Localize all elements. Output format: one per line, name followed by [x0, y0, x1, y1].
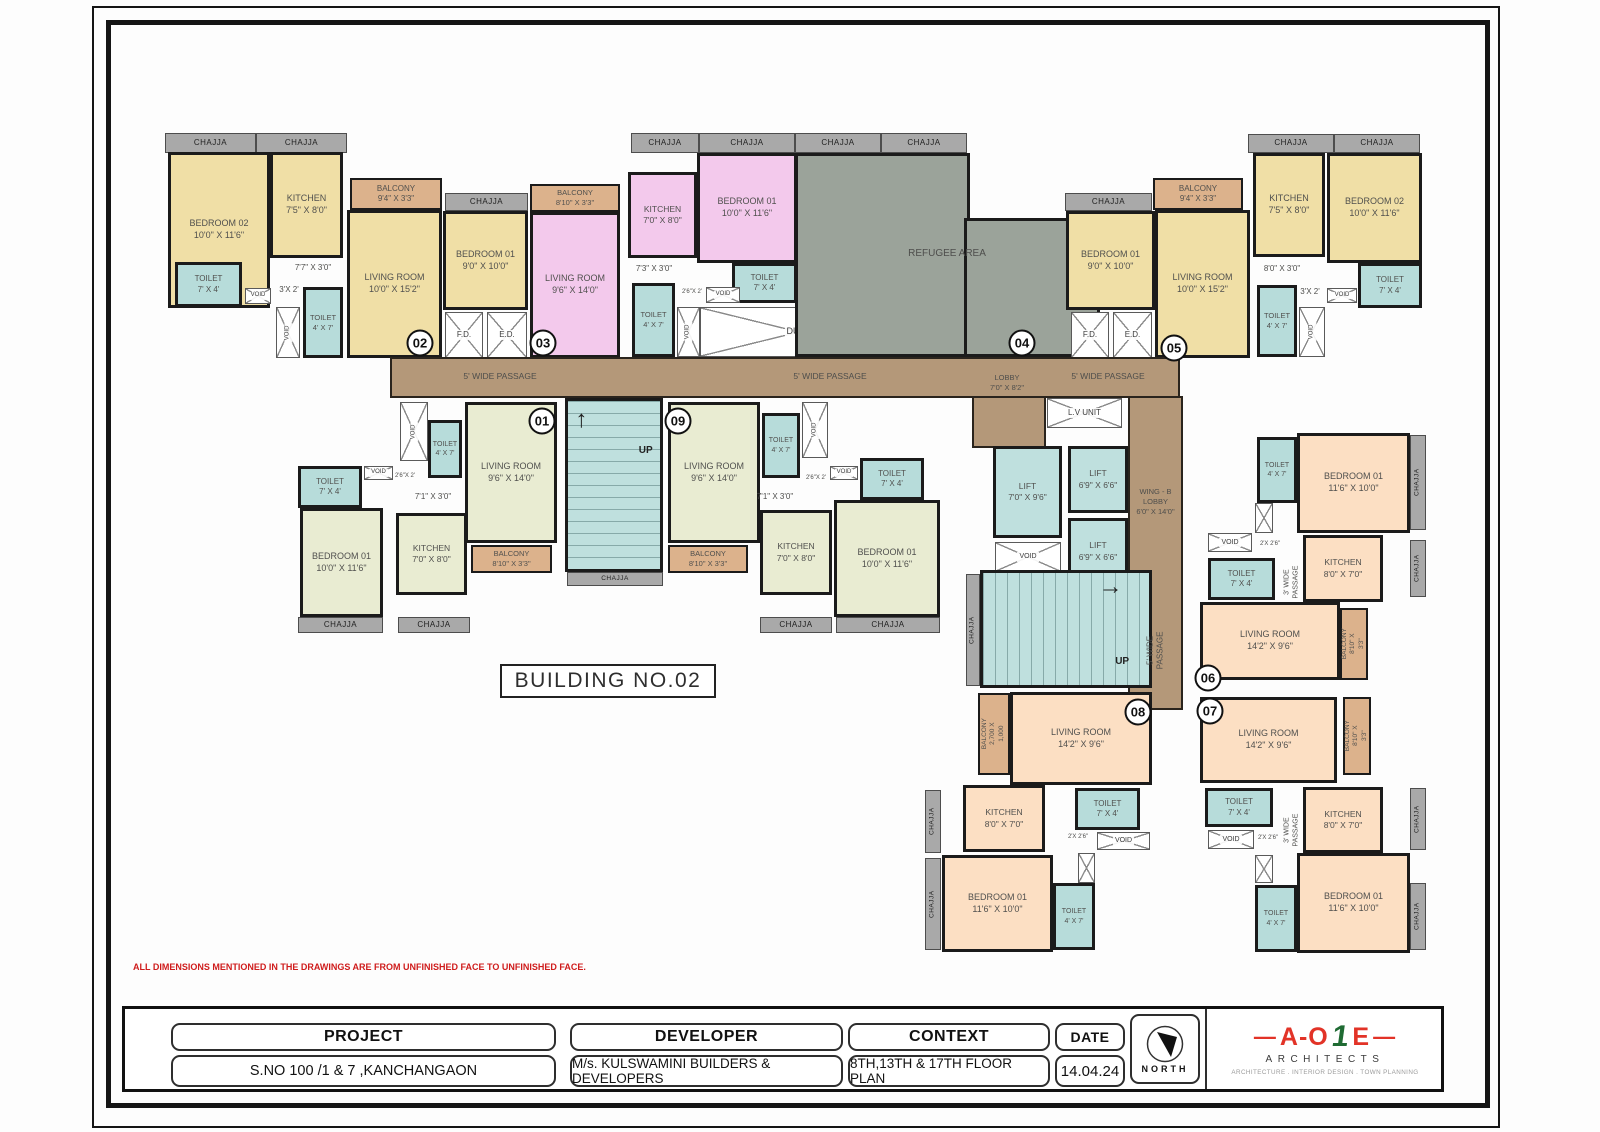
room-label: CHAJJA	[1414, 469, 1422, 497]
room-label: BALCONY 9'4" X 3'3"	[1179, 184, 1217, 205]
room-label: CHAJJA	[929, 890, 937, 918]
developer-value: M/s. KULSWAMINI BUILDERS & DEVELOPERS	[570, 1055, 843, 1087]
e-d--box: E.D.	[487, 312, 527, 358]
void-box	[1255, 855, 1273, 883]
room-label: TOILET 7' X 4'	[1376, 275, 1404, 296]
plan-label: 2'6"X 2'	[389, 471, 421, 482]
void-box: VOID	[276, 307, 300, 358]
room-label: 7'1" X 3'0"	[415, 492, 451, 502]
room-toilet: TOILET 7' X 4'	[175, 262, 242, 307]
room-label: TOILET 7' X 4'	[1228, 569, 1256, 590]
room-label: 2'6"X 2'	[806, 475, 826, 483]
room-label: TOILET 7' X 4'	[1225, 797, 1253, 818]
room-lift: LIFT 6'9" X 6'6"	[1068, 446, 1128, 513]
plan-label: 3' WIDE PASSAGE	[1283, 778, 1299, 883]
room-toilet: TOILET 4' X 7'	[1255, 885, 1297, 952]
room-label: BALCONY 8'10" X 3'3"	[556, 188, 594, 208]
room-label: BALCONY 8'10" X 3'3"	[1344, 720, 1369, 751]
room-toilet: TOILET 7' X 4'	[1205, 788, 1273, 827]
room-kitchen: KITCHEN 8'0" X 7'0"	[963, 785, 1045, 852]
room-label: KITCHEN 8'0" X 7'0"	[1324, 809, 1363, 831]
context-header: CONTEXT	[848, 1023, 1050, 1051]
room-label: BEDROOM 01 11'6" X 10'0"	[968, 892, 1027, 915]
room-toilet: TOILET 4' X 7'	[1257, 285, 1297, 357]
void-box: VOID	[1208, 533, 1252, 552]
plan-label: 2'X 2'6"	[1250, 833, 1286, 844]
room-label: E.D.	[497, 330, 517, 340]
room-label: KITCHEN 7'5" X 8'0"	[286, 193, 327, 216]
logo-text-e: E	[1352, 1025, 1370, 1050]
plan-label: 2'6"X 2'	[800, 473, 832, 484]
chajja-strip: CHAJJA	[567, 572, 663, 586]
room-label: TOILET 4' X 7'	[1062, 907, 1086, 925]
room-label: LIVING ROOM 10'0" X 15'2"	[364, 272, 424, 295]
room-label: 3' WIDE PASSAGE	[1282, 566, 1300, 599]
chajja-strip: CHAJJA	[1410, 883, 1426, 950]
project-header: PROJECT	[171, 1023, 556, 1051]
room-label: L.V UNIT	[1066, 408, 1103, 418]
room-label: TOILET 7' X 4'	[316, 477, 344, 498]
room-label: TOILET 4' X 7'	[310, 313, 336, 333]
void-box: VOID	[830, 466, 858, 480]
room-label: CHAJJA	[907, 138, 940, 148]
room-label: TOILET 4' X 7'	[433, 440, 457, 458]
room-label: CHAJJA	[285, 138, 318, 148]
room-toilet: TOILET 4' X 7'	[428, 420, 462, 478]
room-label: BEDROOM 01 10'0" X 11'6"	[857, 547, 916, 570]
room-label: VOID	[369, 469, 388, 477]
plan-label: 7'7" X 3'0"	[288, 262, 338, 275]
room-label: LIVING ROOM 9'6" X 14'0"	[684, 461, 744, 484]
room-label: F.D.	[455, 330, 473, 340]
room-label: BEDROOM 01 10'0" X 11'6"	[312, 551, 371, 574]
room-bedroom-01: BEDROOM 01 10'0" X 11'6"	[834, 500, 940, 617]
room-label: CHAJJA	[1360, 138, 1393, 148]
logo-dash-left: —	[1254, 1026, 1277, 1048]
room-label: BALCONY 8'10" X 3'3"	[1341, 628, 1366, 659]
logo-tagline: ARCHITECTURE . INTERIOR DESIGN . TOWN PL…	[1231, 1069, 1418, 1076]
room-label: VOID	[410, 422, 418, 441]
chajja-strip: CHAJJA	[1410, 435, 1426, 530]
room-label: CHAJJA	[648, 138, 681, 148]
architect-logo: — A-O 1 E — ARCHITECTS ARCHITECTURE . IN…	[1205, 1009, 1443, 1089]
room-label: VOID	[685, 323, 693, 342]
chajja-strip: CHAJJA	[760, 617, 832, 633]
room-balcony: BALCONY 8'10" X 3'3"	[530, 184, 620, 212]
unit-number-05: 05	[1161, 335, 1188, 362]
unit-number-02: 02	[407, 330, 434, 357]
up-label: UP	[639, 445, 653, 456]
void-box: VOID	[1097, 832, 1150, 850]
void-box: VOID	[1299, 307, 1325, 357]
unit-number-09: 09	[665, 408, 692, 435]
plan-label: 3'X 2'	[1294, 286, 1326, 298]
room-toilet: TOILET 7' X 4'	[1208, 558, 1275, 600]
room-label: BEDROOM 01 9'0" X 10'0"	[1081, 249, 1140, 272]
room-bedroom-01: BEDROOM 01 9'0" X 10'0"	[1066, 211, 1155, 310]
unit-number-07: 07	[1197, 698, 1224, 725]
room-label: VOID	[714, 291, 733, 299]
plan-label: 7'3" X 3'0"	[628, 263, 680, 276]
room-label: 3'X 2'	[1300, 287, 1320, 297]
room-label: CHAJJA	[929, 808, 937, 836]
void-box: VOID	[245, 288, 271, 304]
room-toilet: TOILET 4' X 7'	[1257, 437, 1297, 503]
logo-text-a-o: A-O	[1280, 1025, 1329, 1050]
room-label: VOID	[284, 323, 292, 342]
up-arrow-icon: ↑	[575, 408, 587, 432]
room-balcony-2-700-x-1-000: BALCONY 2,700 X 1,000	[978, 693, 1010, 775]
room-label: CHAJJA	[601, 575, 629, 583]
room-label: F.D.	[1081, 330, 1099, 340]
room-label: 5' WIDE PASSAGE	[793, 371, 866, 382]
room-label: VOID	[1017, 552, 1038, 561]
room-kitchen: KITCHEN 7'5" X 8'0"	[1253, 153, 1325, 257]
room-label: VOID	[1220, 835, 1241, 844]
room-label: TOILET 4' X 7'	[1264, 909, 1288, 927]
room-lift: LIFT 7'0" X 9'6"	[993, 446, 1062, 538]
room-label: TOILET 7' X 4'	[1094, 799, 1122, 820]
room-label: KITCHEN 7'0" X 8'0"	[412, 543, 451, 565]
room-bedroom-01: BEDROOM 01 10'0" X 11'6"	[300, 508, 383, 617]
room-bedroom-01: BEDROOM 01 10'0" X 11'6"	[697, 153, 797, 263]
room-label: CHAJJA	[1092, 197, 1125, 207]
room-kitchen: KITCHEN 8'0" X 7'0"	[1303, 787, 1383, 853]
room-label: BEDROOM 01 10'0" X 11'6"	[717, 196, 776, 219]
room-label: LIFT 6'9" X 6'6"	[1079, 468, 1118, 490]
e-d--box: E.D.	[1113, 312, 1152, 358]
room-label: BALCONY 8'10" X 3'3"	[492, 549, 530, 569]
unit-number-04: 04	[1009, 330, 1036, 357]
room-label: 5' WIDE PASSAGE	[463, 371, 536, 382]
room-label: 2'X 2'6"	[1260, 541, 1280, 549]
room-label: TOILET 4' X 7'	[640, 310, 666, 330]
room-balcony: BALCONY 9'4" X 3'3"	[1153, 178, 1243, 210]
room-label: CHAJJA	[871, 620, 904, 630]
room-toilet: TOILET 7' X 4'	[1358, 263, 1422, 308]
room-label: LIVING ROOM 14'2" X 9'6"	[1051, 727, 1111, 750]
room-label: TOILET 4' X 7'	[769, 436, 793, 454]
chajja-strip: CHAJJA	[1410, 540, 1426, 597]
room-label: 3' WIDE PASSAGE	[1282, 814, 1300, 847]
room-label: CHAJJA	[194, 138, 227, 148]
room-bedroom-02: BEDROOM 02 10'0" X 11'6"	[1327, 153, 1422, 263]
room-label: 2'X 2'6"	[1068, 834, 1088, 842]
room-toilet: TOILET 7' X 4'	[298, 466, 362, 508]
l-v-unit-box: L.V UNIT	[1047, 398, 1122, 428]
staircase: ↑UP	[565, 398, 663, 572]
room-label: CHAJJA	[821, 138, 854, 148]
room-balcony-8-10-x-3-3-: BALCONY 8'10" X 3'3"	[1340, 608, 1368, 680]
room-kitchen: KITCHEN 7'0" X 8'0"	[396, 513, 467, 595]
f-d--box: F.D.	[1071, 312, 1109, 358]
room-label: KITCHEN 8'0" X 7'0"	[1324, 557, 1363, 579]
void-box: VOID	[1327, 288, 1357, 303]
room-bedroom-01: BEDROOM 01 11'6" X 10'0"	[1297, 853, 1410, 953]
room-label: BEDROOM 01 9'0" X 10'0"	[456, 249, 515, 272]
room-kitchen: KITCHEN 7'0" X 8'0"	[760, 510, 832, 595]
void-box: VOID	[400, 402, 428, 461]
room-balcony: BALCONY 8'10" X 3'3"	[471, 545, 552, 573]
room-bedroom-01: BEDROOM 01 11'6" X 10'0"	[942, 855, 1053, 952]
room-label: LIFT 7'0" X 9'6"	[1008, 481, 1047, 503]
plan-label: REFUGEE AREA	[872, 246, 1022, 260]
room-label: 7'1" X 3'0"	[757, 492, 793, 502]
room-kitchen: KITCHEN 7'0" X 8'0"	[628, 172, 697, 258]
chajja-strip: CHAJJA	[398, 617, 470, 633]
plan-label: 5' WIDE PASSAGE	[778, 371, 882, 383]
f-d--box: F.D.	[445, 312, 483, 358]
room-label: CHAJJA	[779, 620, 812, 630]
room-balcony: BALCONY 8'10" X 3'3"	[668, 545, 748, 573]
void-box: VOID	[677, 307, 700, 357]
room-label: REFUGEE AREA	[908, 247, 986, 260]
room-kitchen: KITCHEN 7'5" X 8'0"	[270, 152, 343, 258]
chajja-strip: CHAJJA	[1410, 788, 1426, 850]
chajja-strip: CHAJJA	[1248, 134, 1334, 153]
chajja-strip: CHAJJA	[795, 133, 881, 153]
room-label: LIVING ROOM 10'0" X 15'2"	[1172, 272, 1232, 295]
date-header: DATE	[1055, 1023, 1125, 1051]
room-label: 8'0" X 3'0"	[1264, 264, 1300, 274]
room-label: VOID	[1333, 292, 1352, 300]
room-label: LIFT 6'9" X 6'6"	[1079, 540, 1118, 562]
room-label: BALCONY 2,700 X 1,000	[981, 718, 1006, 749]
room-label: BALCONY 9'4" X 3'3"	[377, 184, 415, 205]
room-label: 5' WIDE PASSAGE	[1146, 631, 1167, 669]
plan-label: WING - B LOBBY 6'0" X 14'0"	[1128, 481, 1183, 523]
void-box	[1255, 503, 1273, 533]
plan-label: 2'6"X 2'	[676, 287, 708, 298]
context-value: 8TH,13TH & 17TH FLOOR PLAN	[848, 1055, 1050, 1087]
room-label: 3'X 2'	[279, 285, 299, 295]
room-kitchen: KITCHEN 8'0" X 7'0"	[1303, 535, 1383, 602]
room-label: TOILET 7' X 4'	[751, 273, 779, 294]
room-label: KITCHEN 7'0" X 8'0"	[643, 204, 682, 226]
room-label: 2'6"X 2'	[395, 473, 415, 481]
up-label: UP	[1115, 656, 1129, 667]
room-label: LIVING ROOM 14'2" X 9'6"	[1238, 728, 1298, 751]
room-label: VOID	[1308, 323, 1316, 342]
chajja-strip: CHAJJA	[925, 858, 941, 950]
room-label: VOID	[835, 469, 854, 477]
room-label: VOID	[811, 421, 819, 440]
unit-number-06: 06	[1195, 665, 1222, 692]
dimension-note: ALL DIMENSIONS MENTIONED IN THE DRAWINGS…	[133, 962, 586, 972]
room-label: KITCHEN 7'0" X 8'0"	[777, 541, 816, 563]
room-label: WING - B LOBBY 6'0" X 14'0"	[1136, 487, 1174, 516]
room-label: 5' WIDE PASSAGE	[1071, 371, 1144, 382]
unit-number-01: 01	[529, 408, 556, 435]
void-box: VOID	[1208, 830, 1254, 849]
unit-number-03: 03	[530, 330, 557, 357]
building-title-text: BUILDING NO.02	[515, 669, 702, 693]
room-label: CHAJJA	[417, 620, 450, 630]
plan-label: 3' WIDE PASSAGE	[1283, 530, 1299, 635]
room-label: LIVING ROOM 9'6" X 14'0"	[481, 461, 541, 484]
north-indicator: NORTH	[1130, 1014, 1200, 1084]
staircase: →UP	[980, 570, 1152, 688]
room-balcony-8-10-x-3-3-: BALCONY 8'10" X 3'3"	[1343, 697, 1371, 775]
room-toilet: TOILET 4' X 7'	[1053, 883, 1095, 950]
plan-label: LOBBY 7'0" X 8'2"	[975, 369, 1039, 396]
room-label: 2'X 2'6"	[1258, 835, 1278, 843]
plan-label: 2'X 2'6"	[1060, 832, 1096, 843]
room-bedroom-01: BEDROOM 01 9'0" X 10'0"	[443, 211, 528, 310]
room-label: CHAJJA	[1414, 903, 1422, 931]
room-label: CHAJJA	[730, 138, 763, 148]
building-title: BUILDING NO.02	[500, 664, 716, 698]
chajja-strip: CHAJJA	[925, 790, 941, 853]
room-label: LOBBY 7'0" X 8'2"	[990, 373, 1024, 393]
plan-label: 7'1" X 3'0"	[408, 491, 458, 504]
chajja-strip: CHAJJA	[631, 133, 699, 153]
north-arrow-icon	[1146, 1025, 1184, 1063]
room-living-room: LIVING ROOM 14'2" X 9'6"	[1200, 602, 1340, 680]
room-label: 7'3" X 3'0"	[636, 264, 672, 274]
chajja-strip: CHAJJA	[881, 133, 967, 153]
chajja-strip: CHAJJA	[1065, 193, 1152, 211]
title-block: PROJECT S.NO 100 /1 & 7 ,KANCHANGAON DEV…	[122, 1006, 1444, 1092]
developer-header: DEVELOPER	[570, 1023, 843, 1051]
room-label: BEDROOM 02 10'0" X 11'6"	[189, 218, 248, 241]
north-label: NORTH	[1142, 1064, 1189, 1074]
void-box: VOID	[706, 287, 740, 303]
void-box: VOID	[995, 542, 1061, 572]
unit-number-08: 08	[1125, 699, 1152, 726]
room-passage	[972, 396, 1046, 448]
room-label: 2'6"X 2'	[682, 289, 702, 297]
plan-label: 7'1" X 3'0"	[750, 491, 800, 504]
room-balcony: BALCONY 9'4" X 3'3"	[350, 178, 442, 210]
chajja-strip: CHAJJA	[165, 133, 256, 153]
room-label: CHAJJA	[1274, 138, 1307, 148]
chajja-strip: CHAJJA	[966, 574, 980, 686]
room-label: LIVING ROOM 9'6" X 14'0"	[545, 273, 605, 296]
date-value: 14.04.24	[1055, 1055, 1125, 1087]
room-toilet: TOILET 7' X 4'	[732, 263, 797, 303]
room-label: BEDROOM 01 11'6" X 10'0"	[1324, 891, 1383, 914]
room-toilet: TOILET 4' X 7'	[303, 287, 343, 358]
room-label: BEDROOM 01 11'6" X 10'0"	[1324, 471, 1383, 494]
logo-one-glyph: 1	[1330, 1022, 1352, 1052]
room-toilet: TOILET 7' X 4'	[1075, 788, 1140, 830]
room-label: CHAJJA	[1414, 555, 1422, 583]
room-toilet: TOILET 7' X 4'	[860, 458, 924, 500]
plan-label: 5' WIDE PASSAGE	[448, 371, 552, 383]
plan-label: 8'0" X 3'0"	[1256, 263, 1308, 276]
chajja-strip: CHAJJA	[699, 133, 795, 153]
drawing-sheet: CHAJJACHAJJABEDROOM 02 10'0" X 11'6"KITC…	[0, 0, 1600, 1132]
room-label: VOID	[249, 292, 268, 300]
room-label: TOILET 4' X 7'	[1265, 461, 1289, 479]
right-arrow-icon: →	[1098, 575, 1122, 599]
chajja-strip: CHAJJA	[1334, 134, 1420, 153]
room-label: BEDROOM 02 10'0" X 11'6"	[1345, 196, 1404, 219]
chajja-strip: CHAJJA	[445, 193, 528, 211]
room-label: CHAJJA	[324, 620, 357, 630]
logo-wordmark: — A-O 1 E —	[1254, 1022, 1396, 1052]
room-label: KITCHEN 8'0" X 7'0"	[985, 807, 1024, 829]
plan-label: 5' WIDE PASSAGE	[1056, 371, 1160, 383]
room-bedroom-01: BEDROOM 01 11'6" X 10'0"	[1297, 433, 1410, 533]
void-box: VOID	[802, 402, 828, 458]
void-box	[1078, 853, 1095, 883]
room-toilet: TOILET 4' X 7'	[632, 283, 675, 357]
room-label: TOILET 4' X 7'	[1264, 311, 1290, 331]
project-value: S.NO 100 /1 & 7 ,KANCHANGAON	[171, 1055, 556, 1087]
room-label: CHAJJA	[1414, 805, 1422, 833]
plan-label: 3'X 2'	[272, 284, 306, 297]
room-label: CHAJJA	[470, 197, 503, 207]
room-label: VOID	[1219, 538, 1240, 547]
room-label: BALCONY 8'10" X 3'3"	[689, 549, 727, 569]
room-label: CHAJJA	[969, 616, 977, 644]
chajja-strip: CHAJJA	[298, 617, 383, 633]
chajja-strip: CHAJJA	[256, 133, 347, 153]
logo-subtitle: ARCHITECTS	[1266, 1054, 1385, 1065]
room-label: E.D.	[1123, 330, 1143, 340]
room-label: KITCHEN 7'5" X 8'0"	[1269, 193, 1310, 216]
room-label: TOILET 7' X 4'	[195, 274, 223, 295]
logo-dash-right: —	[1373, 1026, 1396, 1048]
chajja-strip: CHAJJA	[836, 617, 940, 633]
room-toilet: TOILET 4' X 7'	[762, 413, 800, 478]
room-label: VOID	[1113, 836, 1134, 845]
room-label: TOILET 7' X 4'	[878, 469, 906, 490]
plan-label: 5' WIDE PASSAGE	[1144, 595, 1168, 705]
room-label: 7'7" X 3'0"	[295, 263, 331, 273]
